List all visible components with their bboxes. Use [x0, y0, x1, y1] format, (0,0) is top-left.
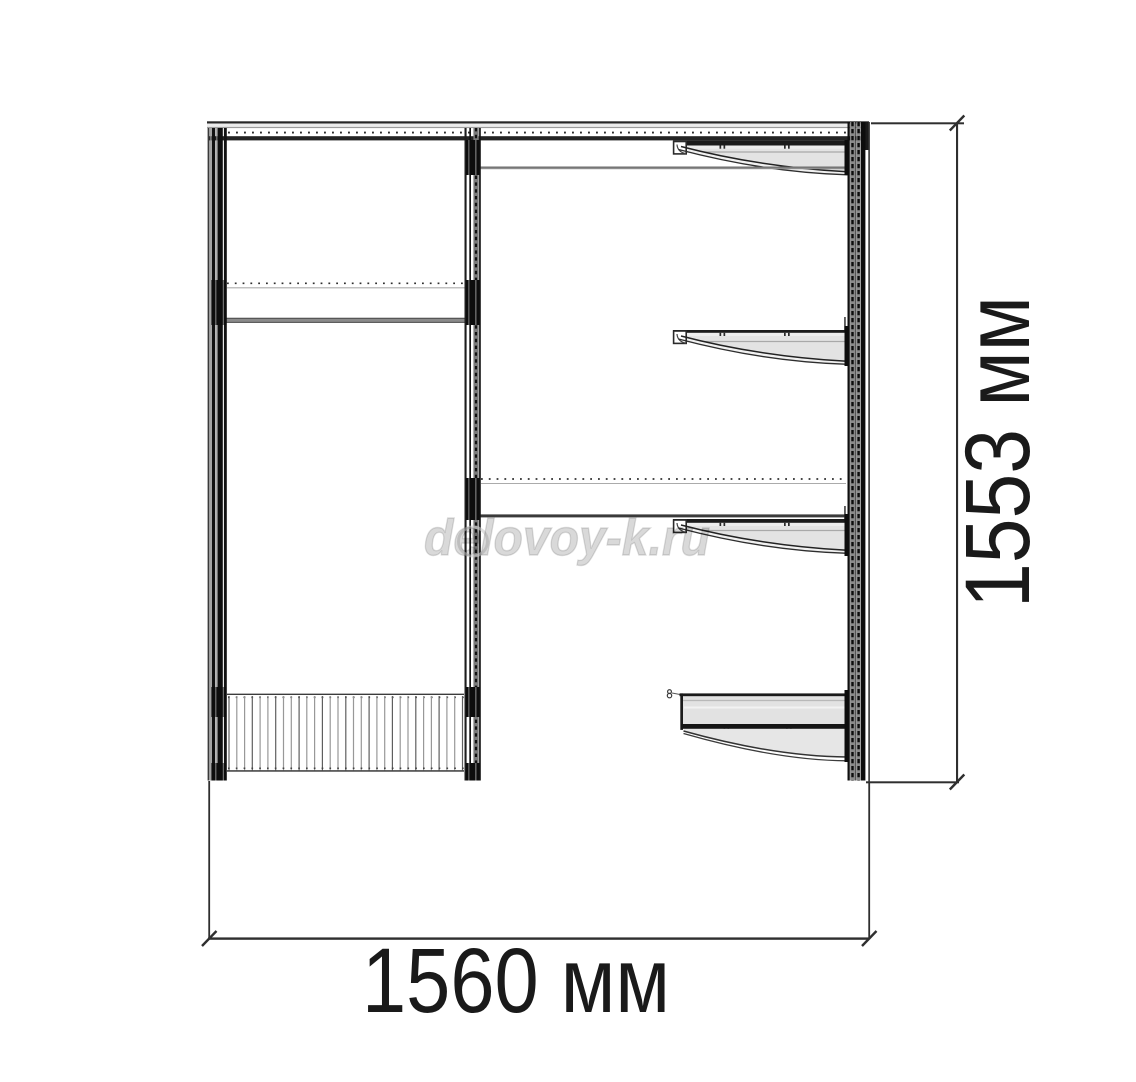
- svg-text:1560 мм: 1560 мм: [362, 930, 670, 1032]
- svg-text:1553 мм: 1553 мм: [947, 296, 1049, 608]
- svg-text:delovoy-k.ru: delovoy-k.ru: [424, 509, 710, 566]
